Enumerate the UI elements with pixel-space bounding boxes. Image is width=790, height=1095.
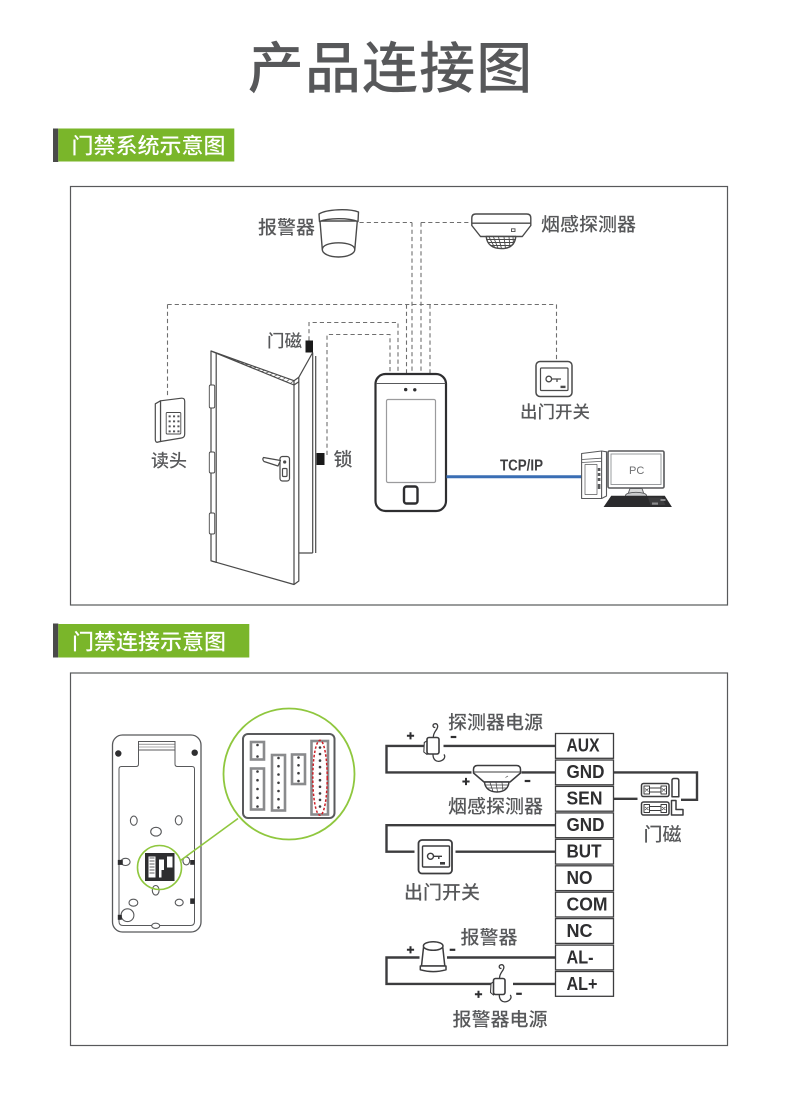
svg-text:BUT: BUT (567, 841, 603, 862)
svg-text:PC: PC (629, 465, 644, 477)
svg-text:NC: NC (567, 920, 593, 941)
svg-text:GND: GND (567, 814, 605, 835)
svg-text:AUX: AUX (567, 735, 601, 756)
svg-text:GND: GND (567, 761, 605, 782)
svg-text:NO: NO (567, 867, 593, 888)
svg-text:SEN: SEN (567, 788, 603, 809)
svg-text:COM: COM (567, 893, 608, 914)
svg-text:AL-: AL- (567, 946, 594, 967)
svg-text:AL+: AL+ (567, 973, 598, 994)
svg-text:TCP/IP: TCP/IP (500, 458, 543, 475)
